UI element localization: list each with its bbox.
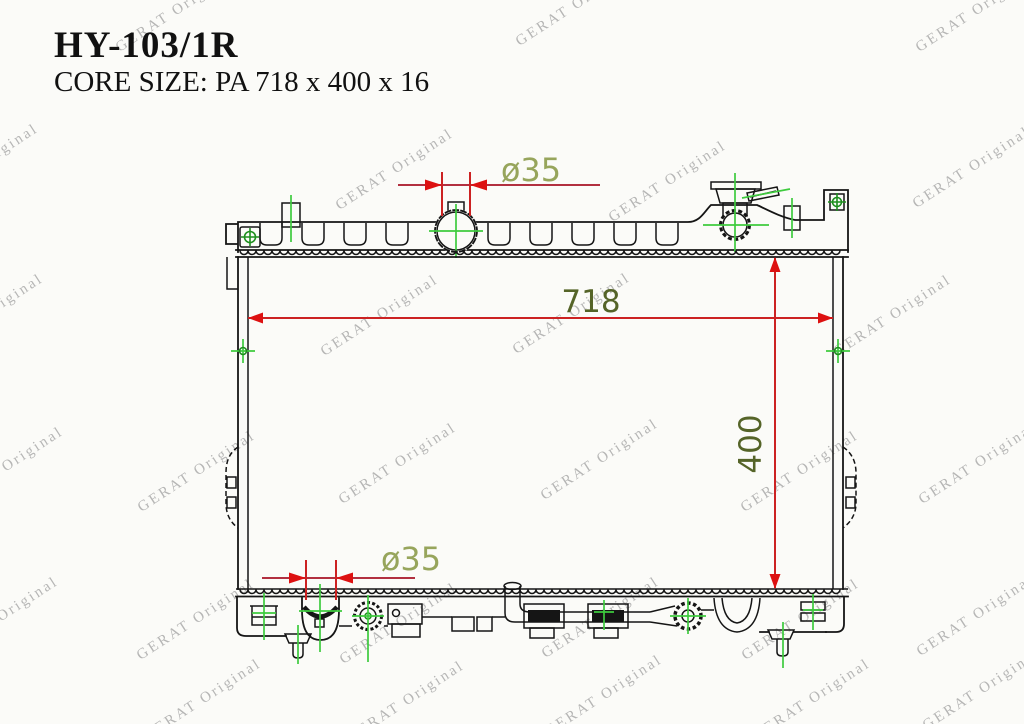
top-bracket — [282, 195, 300, 242]
bottom-pin-right — [768, 622, 794, 668]
right-side-bracket-dashed — [843, 447, 856, 528]
top-tank — [226, 190, 848, 289]
sensor-box — [388, 604, 422, 637]
drain-plug — [339, 595, 388, 662]
dim-bottom-port-label: ø35 — [381, 540, 441, 578]
top-right-bolt — [828, 193, 846, 211]
core-bottom-fins — [236, 589, 848, 597]
radiator-drawing: 718 400 ø35 ø35 — [0, 0, 1024, 724]
pipe-fitting — [670, 598, 714, 634]
radiator-cap — [703, 173, 769, 252]
right-side-fastener — [826, 339, 850, 363]
mounting-feet — [524, 600, 628, 638]
bottom-bracket-left — [250, 593, 278, 640]
dim-core-width: 718 — [248, 284, 833, 324]
dim-core-height: 400 — [733, 257, 781, 589]
bottom-bracket-right — [801, 594, 825, 630]
left-side-fastener — [231, 339, 255, 363]
dim-top-port-label: ø35 — [501, 151, 561, 189]
left-side-bracket-dashed — [226, 447, 238, 528]
bottom-pin-left — [285, 625, 311, 664]
dim-top-port: ø35 — [398, 151, 600, 216]
top-left-bolt — [240, 227, 260, 247]
bottom-tank — [237, 583, 844, 669]
dim-height-label: 400 — [733, 414, 769, 473]
core-top-fins — [236, 251, 848, 258]
dim-width-label: 718 — [561, 284, 620, 320]
page: GERAT OriginalGERAT OriginalGERAT Origin… — [0, 0, 1024, 724]
